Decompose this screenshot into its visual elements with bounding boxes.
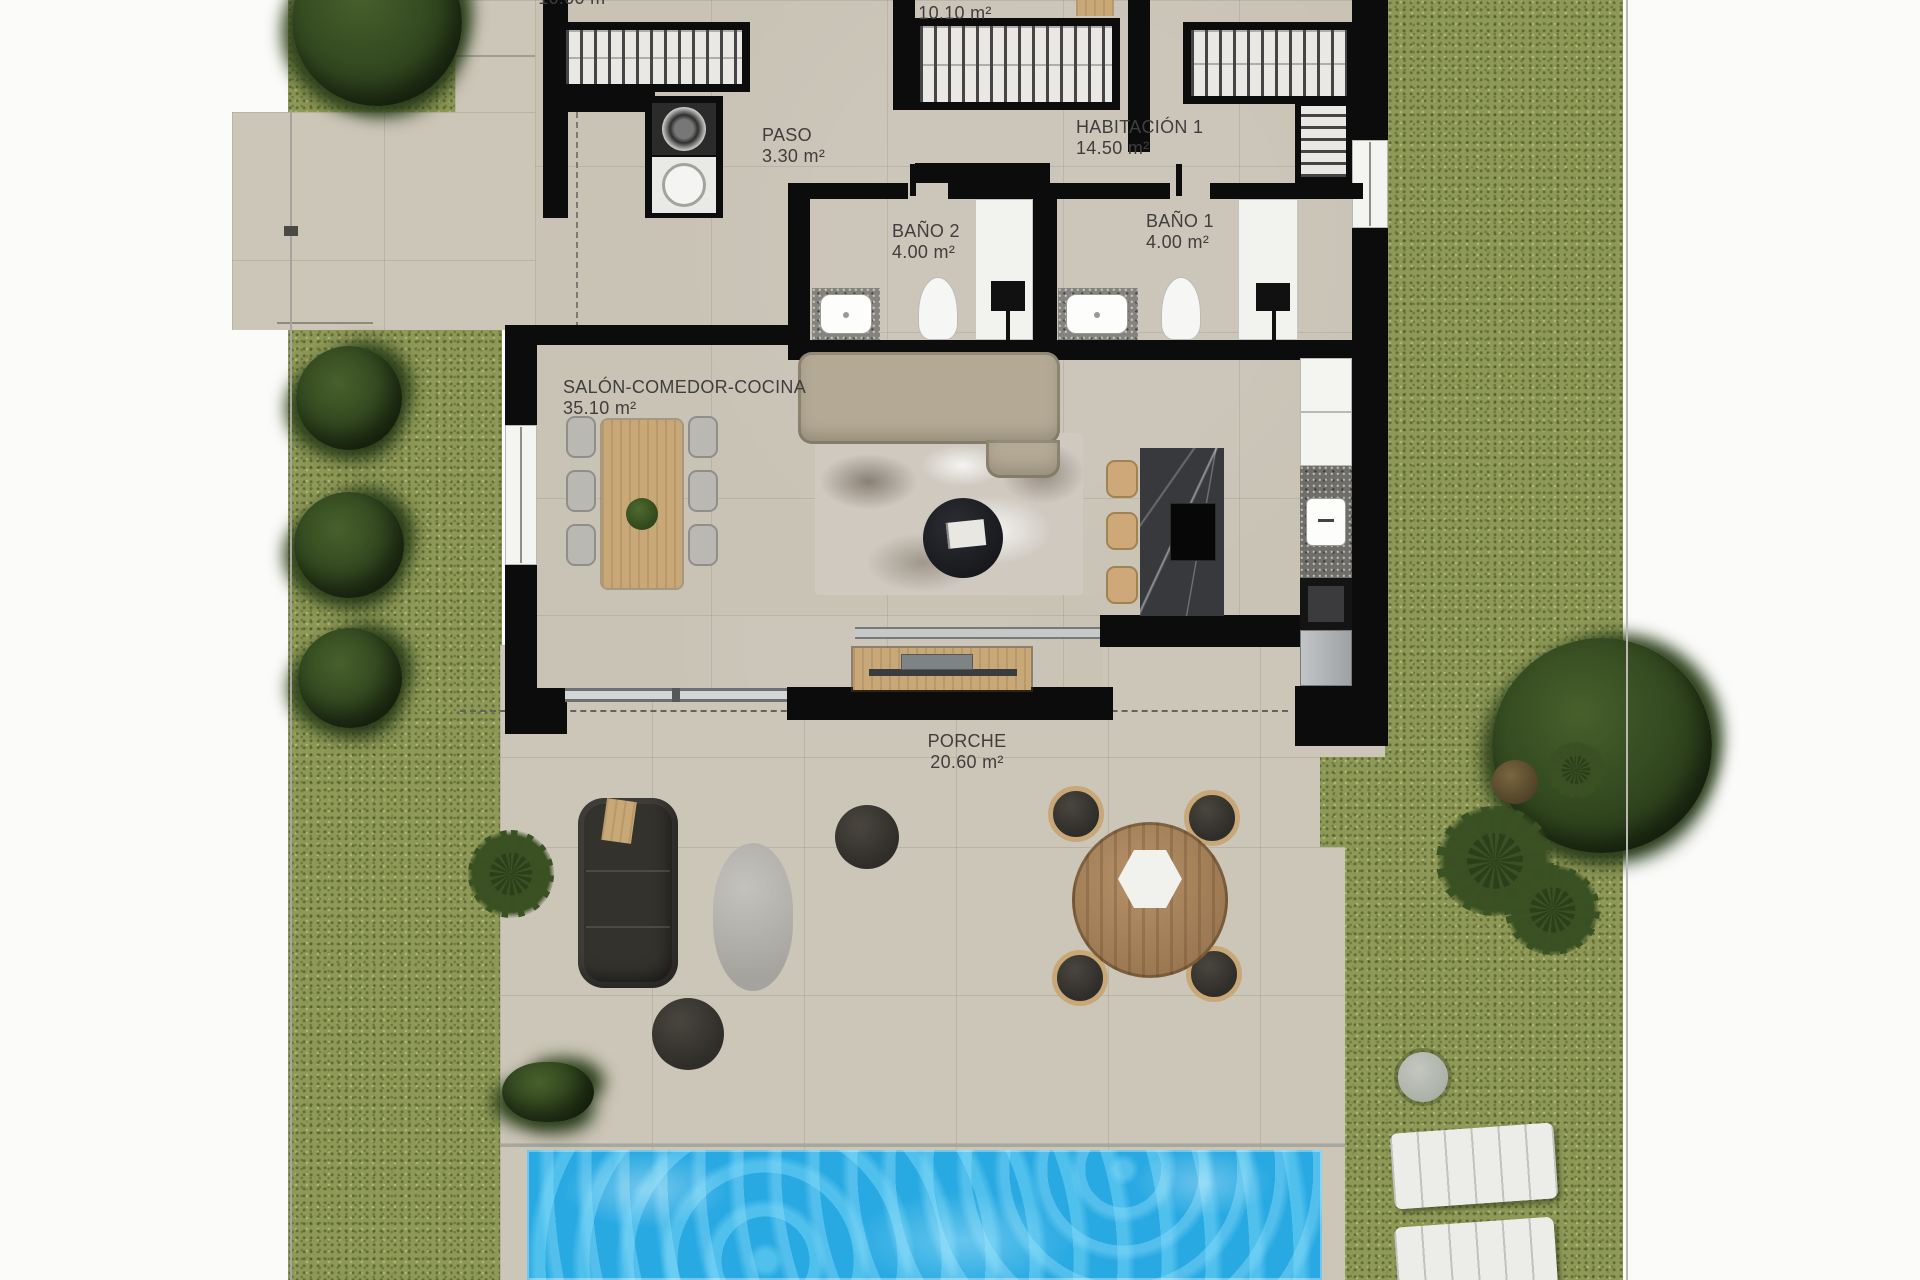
- room-label-bedroom2: 10.00 m²: [500, 0, 650, 9]
- wall-bedroom3-south: [915, 163, 1050, 183]
- patio-chair: [1048, 786, 1104, 842]
- room-label-bano2: BAÑO 2 4.00 m²: [892, 221, 960, 263]
- bar-stool: [1106, 566, 1138, 604]
- room-label-porche: PORCHE 20.60 m²: [897, 731, 1037, 773]
- bar-stool: [1106, 512, 1138, 550]
- grass-tuft-deck: [468, 830, 554, 918]
- bar-stool: [1106, 460, 1138, 498]
- stepping-stone: [1398, 1052, 1448, 1102]
- pool-coping-line: [500, 1144, 1345, 1147]
- room-area: 3.30 m²: [762, 146, 825, 167]
- tv-screen: [901, 654, 973, 670]
- room-name: BAÑO 1: [1146, 211, 1214, 232]
- room-label-salon: SALÓN-COMEDOR-COCINA 35.10 m²: [563, 377, 806, 419]
- dryer-drum-icon: [662, 163, 706, 207]
- shrub-brown: [1492, 760, 1538, 804]
- wall-east-upper: [1352, 0, 1388, 140]
- room-area: 10.00 m²: [500, 0, 650, 9]
- sun-lounger: [1390, 1122, 1559, 1209]
- grass-left-strip: [288, 325, 502, 1280]
- room-area: 14.50 m²: [1076, 138, 1203, 159]
- table-plant-icon: [626, 498, 658, 530]
- wall-bath-north-c: [1210, 183, 1363, 199]
- room-label-bano1: BAÑO 1 4.00 m²: [1146, 211, 1214, 253]
- gate-marker: [284, 226, 298, 236]
- wall-south-kitchen: [1100, 615, 1305, 647]
- room-area: 4.00 m²: [1146, 232, 1214, 253]
- room-area: 20.60 m²: [897, 752, 1037, 773]
- sofa-chaise: [986, 440, 1060, 478]
- room-name: HABITACIÓN 1: [1076, 117, 1203, 138]
- door-leaf-bano2: [910, 164, 916, 196]
- oven-door: [1308, 586, 1344, 622]
- wall-bath-west: [788, 195, 810, 345]
- sink-bano2-drain: [843, 312, 849, 318]
- sliding-door-handle: [672, 688, 680, 702]
- bush-left: [298, 628, 402, 728]
- bush-left: [296, 346, 402, 450]
- door-leaf-bano1: [1176, 164, 1182, 196]
- driveway-apron: [232, 112, 545, 330]
- sun-lounger: [1394, 1217, 1558, 1280]
- room-area: 4.00 m²: [892, 242, 960, 263]
- sink-bano1-drain: [1094, 312, 1100, 318]
- dining-chair: [688, 416, 718, 458]
- dining-chair: [688, 470, 718, 512]
- fridge: [1300, 630, 1352, 686]
- coffee-table-book: [946, 519, 987, 549]
- floor-plan-canvas: 10.00 m² 10.10 m² PASO 3.30 m² HABITACIÓ…: [0, 0, 1920, 1280]
- pouf: [652, 998, 724, 1070]
- dining-chair: [688, 524, 718, 566]
- bush-pool-edge: [502, 1062, 594, 1122]
- room-area: 10.10 m²: [900, 3, 1010, 24]
- kitchen-cabinet-2: [1300, 412, 1352, 466]
- kitchen-faucet-icon: [1318, 519, 1334, 522]
- window-strip-tv-wall: [855, 627, 1100, 639]
- pine-shrub: [1505, 865, 1600, 955]
- room-label-paso: PASO 3.30 m²: [762, 125, 825, 167]
- lounge-ottoman: [713, 843, 793, 991]
- wall-salon-north-west: [505, 325, 807, 345]
- shower-tray-bano2: [975, 199, 1033, 340]
- wall-south-middle: [787, 687, 1113, 720]
- outdoor-sofa-cushion-line: [586, 870, 670, 872]
- dining-chair: [566, 524, 596, 566]
- shower-head-bano2-icon: [991, 281, 1025, 311]
- room-name: PASO: [762, 125, 825, 146]
- entry-canopy-dashed-line: [576, 112, 578, 328]
- wall-east-lower: [1352, 228, 1388, 688]
- induction-hob-icon: [1170, 503, 1216, 561]
- wardrobe-bedroom2: [566, 30, 742, 84]
- wall-west-salon-lower: [505, 565, 537, 692]
- sofa: [798, 352, 1060, 444]
- nightstand: [1076, 0, 1114, 16]
- wall-bath-north-b: [948, 183, 1170, 199]
- outdoor-sofa-cushion-line: [586, 926, 670, 928]
- bush-left: [294, 492, 404, 598]
- shower-head-bano1-icon: [1256, 283, 1290, 311]
- kitchen-cabinet-1: [1300, 358, 1352, 412]
- room-name: PORCHE: [897, 731, 1037, 752]
- dining-chair: [566, 470, 596, 512]
- room-name: SALÓN-COMEDOR-COCINA: [563, 377, 806, 398]
- room-label-habitacion1: HABITACIÓN 1 14.50 m²: [1076, 117, 1203, 159]
- plot-boundary-left: [290, 110, 292, 1280]
- closet-habitacion1: [1301, 106, 1346, 177]
- fern-plant: [1546, 742, 1606, 798]
- plot-boundary-right: [1626, 0, 1628, 1280]
- sofa-arm-tray: [601, 798, 637, 844]
- wall-sw-corner: [505, 688, 567, 734]
- shower-tray-bano1: [1238, 199, 1298, 340]
- tv-soundbar: [869, 669, 1017, 676]
- room-name: BAÑO 2: [892, 221, 960, 242]
- room-label-bedroom3: 10.10 m²: [900, 3, 1010, 24]
- wall-bath-middle: [1033, 195, 1057, 345]
- dining-chair: [566, 416, 596, 458]
- washer-drum-icon: [662, 107, 706, 151]
- pouf: [835, 805, 899, 869]
- wardrobe-bedroom3: [920, 26, 1112, 102]
- room-area: 35.10 m²: [563, 398, 806, 419]
- kitchen-sink: [1306, 498, 1346, 546]
- window-east-frame: [1369, 142, 1371, 226]
- wall-bath-north-a: [788, 183, 908, 199]
- swimming-pool: [527, 1150, 1322, 1280]
- wardrobe-habitacion1: [1191, 30, 1347, 96]
- wall-bedroom2-south: [543, 90, 655, 112]
- driveway-edge-line: [455, 55, 543, 57]
- wall-se-corner: [1295, 686, 1388, 746]
- window-west-frame: [520, 427, 522, 563]
